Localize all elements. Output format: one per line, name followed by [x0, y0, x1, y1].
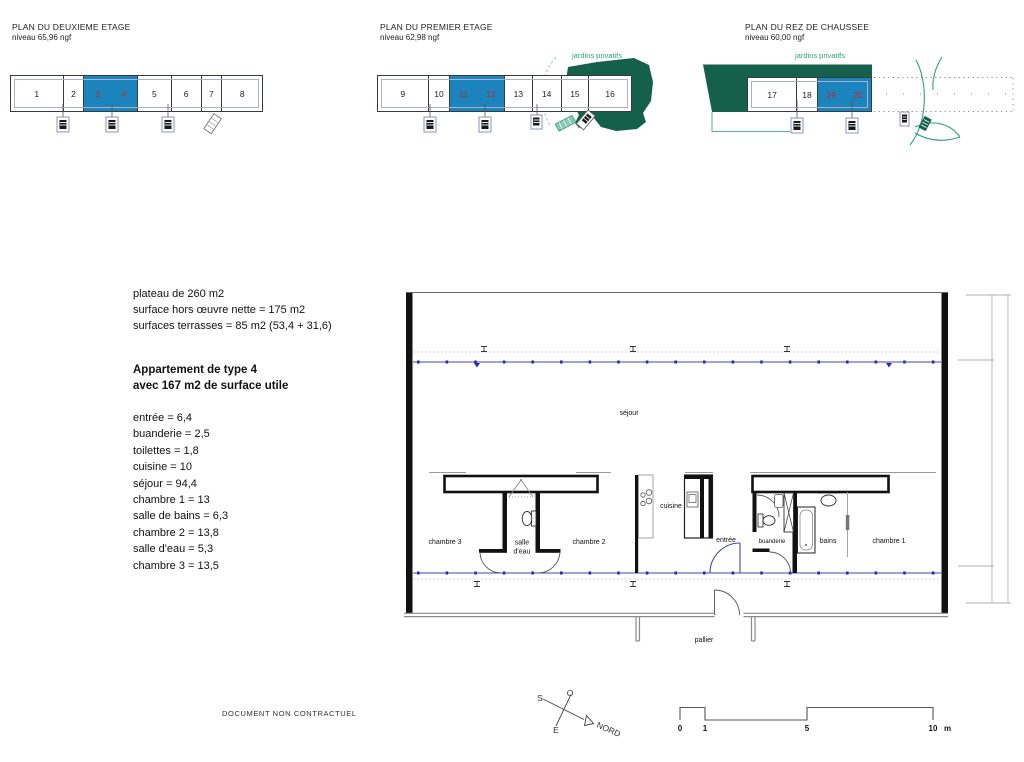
- room-label-chambre3: chambre 3: [428, 539, 461, 548]
- kitchen-fixtures: [635, 473, 713, 574]
- room-area: salle d'eau = 5,3: [133, 541, 228, 557]
- scale-tick-5: 5: [805, 724, 810, 733]
- floorplan-document-page: PLAN DU DEUXIEME ETAGE niveau 65,96 ngf …: [0, 0, 1024, 762]
- compass-west-label: O: [567, 688, 574, 698]
- salle-deau-walls: [429, 473, 611, 574]
- room-label-chambre2: chambre 2: [572, 539, 605, 548]
- room-area: toilettes = 1,8: [133, 443, 228, 459]
- plan-rdc-site-lines: [700, 20, 1024, 160]
- scale-tick-0: 0: [678, 724, 683, 733]
- glazing-top: [413, 347, 941, 368]
- buanderie-bains-walls: [750, 473, 936, 574]
- room-label-cuisine: cuisine: [660, 503, 682, 512]
- compass-icon: O S E NORD: [520, 675, 650, 755]
- apartment-title-line1: Appartement de type 4: [133, 362, 288, 378]
- room-label-chambre1: chambre 1: [872, 538, 905, 547]
- pallier-entry-door: [715, 590, 740, 615]
- apartment-title: Appartement de type 4 avec 167 m2 de sur…: [133, 362, 288, 394]
- room-label-buanderie: buanderie: [759, 538, 786, 547]
- apartment-floorplan-drawing: [400, 285, 1024, 647]
- room-area: buanderie = 2,5: [133, 426, 228, 442]
- room-label-salle-deau: salle d'eau: [514, 540, 531, 557]
- room-area: entrée = 6,4: [133, 410, 228, 426]
- room-area: séjour = 94,4: [133, 476, 228, 492]
- apartment-title-line2: avec 167 m2 de surface utile: [133, 378, 288, 394]
- corridor-wall: [404, 613, 948, 641]
- room-label-salle: salle: [514, 540, 531, 549]
- room-area: chambre 3 = 13,5: [133, 558, 228, 574]
- room-label-entree: entrée: [716, 537, 736, 546]
- scale-bar: 0 1 5 10 m: [665, 690, 965, 740]
- disclaimer-note: DOCUMENT NON CONTRACTUEL: [222, 709, 357, 718]
- scale-unit-label: m: [944, 724, 951, 733]
- room-label-pallier: pallier: [695, 637, 714, 646]
- room-label-bains: bains: [820, 538, 837, 547]
- compass-north-label: NORD: [595, 720, 622, 739]
- room-area: chambre 1 = 13: [133, 492, 228, 508]
- summary-line: surfaces terrasses = 85 m2 (53,4 + 31,6): [133, 318, 332, 334]
- plan-deuxieme-stairs-icon: [0, 20, 280, 150]
- glazing-bottom: [413, 573, 941, 587]
- scale-tick-10: 10: [929, 724, 938, 733]
- scale-tick-1: 1: [703, 724, 708, 733]
- room-label-deau: d'eau: [514, 548, 531, 557]
- surface-summary: plateau de 260 m2 surface hors œuvre net…: [133, 286, 332, 334]
- room-areas-list: entrée = 6,4 buanderie = 2,5 toilettes =…: [133, 410, 228, 574]
- compass-east-label: E: [553, 725, 559, 735]
- compass-south-label: S: [537, 693, 543, 703]
- entree-door: [710, 543, 740, 573]
- room-area: cuisine = 10: [133, 459, 228, 475]
- room-label-sejour: séjour: [619, 410, 638, 419]
- summary-line: surface hors œuvre nette = 175 m2: [133, 302, 332, 318]
- room-area: salle de bains = 6,3: [133, 508, 228, 524]
- plan-premier-stairs-icon: [370, 20, 670, 155]
- dimension-lines: [958, 295, 1011, 603]
- room-area: chambre 2 = 13,8: [133, 525, 228, 541]
- summary-line: plateau de 260 m2: [133, 286, 332, 302]
